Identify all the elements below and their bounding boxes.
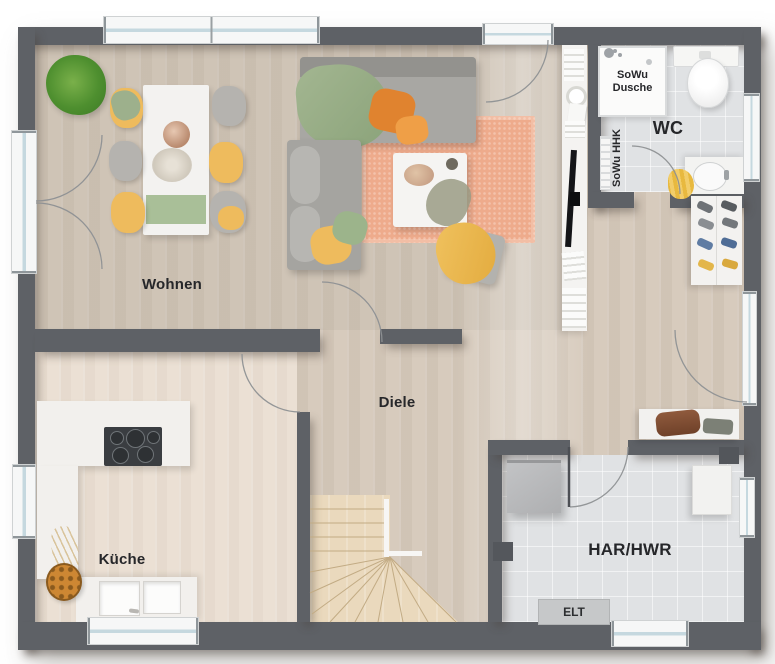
stair-newel-post: [384, 499, 389, 557]
stair-winder-edge: [312, 557, 390, 614]
stair-winder-edge: [310, 557, 390, 593]
terrace-door-arc-2: [36, 203, 102, 269]
room-label-diele: Diele: [347, 394, 447, 411]
floor-plan-canvas: SoWu Dusche ELT: [0, 0, 775, 664]
towel-radiator-label: SoWu HHK: [597, 127, 637, 189]
wohnen-diele-door-arc: [322, 282, 382, 342]
har-door-arc: [570, 447, 628, 507]
front-door-arc: [486, 40, 548, 102]
terrace-door-arc-1: [36, 135, 102, 201]
room-label-har-hwr: HAR/HWR: [558, 540, 702, 560]
room-label-kueche: Küche: [72, 551, 172, 568]
room-label-wc: WC: [640, 118, 696, 139]
stair-winder-edge: [378, 557, 390, 622]
room-label-wohnen: Wohnen: [112, 276, 232, 293]
back-door-arc: [675, 330, 747, 402]
stair-winder-edge: [390, 557, 403, 622]
wc-door-arc: [632, 146, 680, 194]
kitchen-door-arc: [242, 354, 300, 412]
stair-handrail: [384, 551, 422, 556]
stair-winder-edge: [390, 557, 456, 622]
